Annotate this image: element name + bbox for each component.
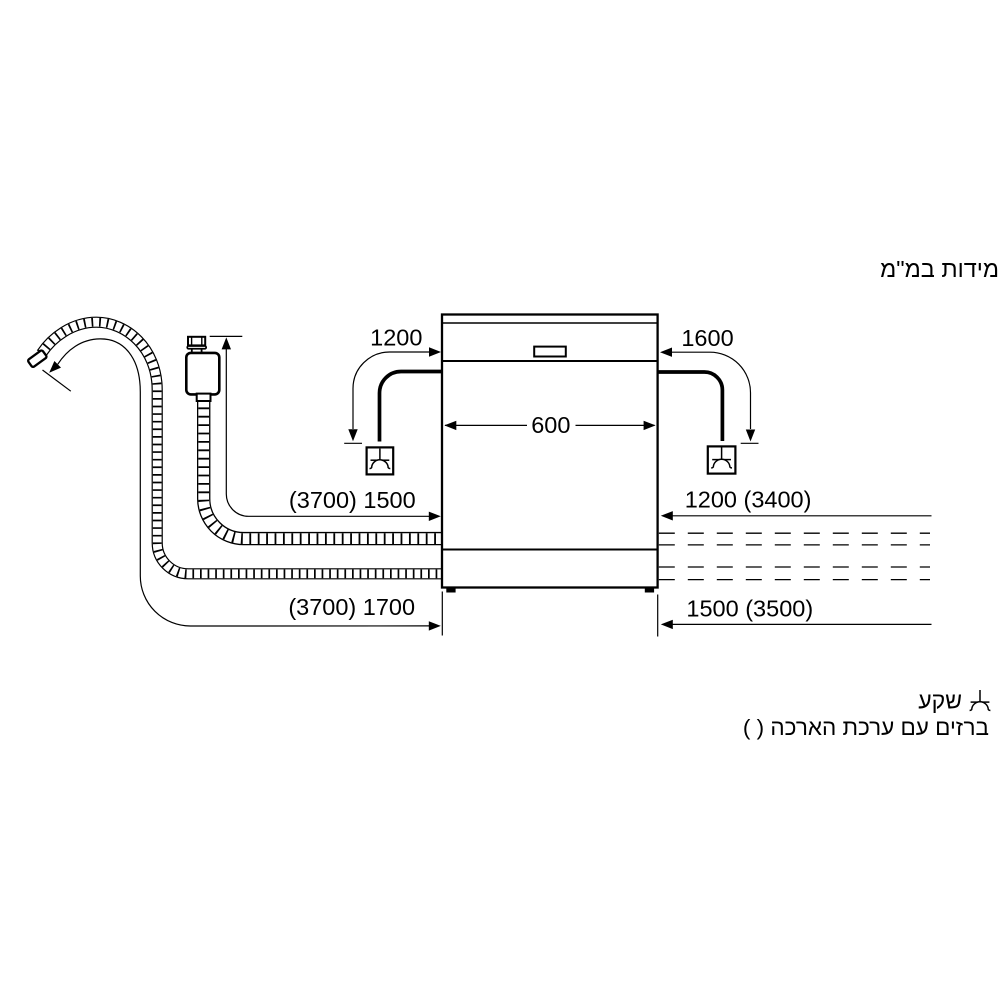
- svg-text:1500 (3500): 1500 (3500): [686, 596, 813, 622]
- svg-text:1600: 1600: [681, 325, 733, 351]
- svg-text:( ) ברזים עם ערכת הארכה: ( ) ברזים עם ערכת הארכה: [743, 715, 989, 740]
- svg-text:(3700) 1700: (3700) 1700: [288, 594, 415, 620]
- svg-text:מידות במ"מ: מידות במ"מ: [880, 256, 999, 282]
- svg-text:1200 (3400): 1200 (3400): [685, 486, 812, 512]
- svg-text:600: 600: [531, 412, 570, 438]
- svg-text:1200: 1200: [370, 325, 422, 351]
- svg-text:(3700) 1500: (3700) 1500: [289, 487, 416, 513]
- svg-text:שקע: שקע: [918, 688, 962, 714]
